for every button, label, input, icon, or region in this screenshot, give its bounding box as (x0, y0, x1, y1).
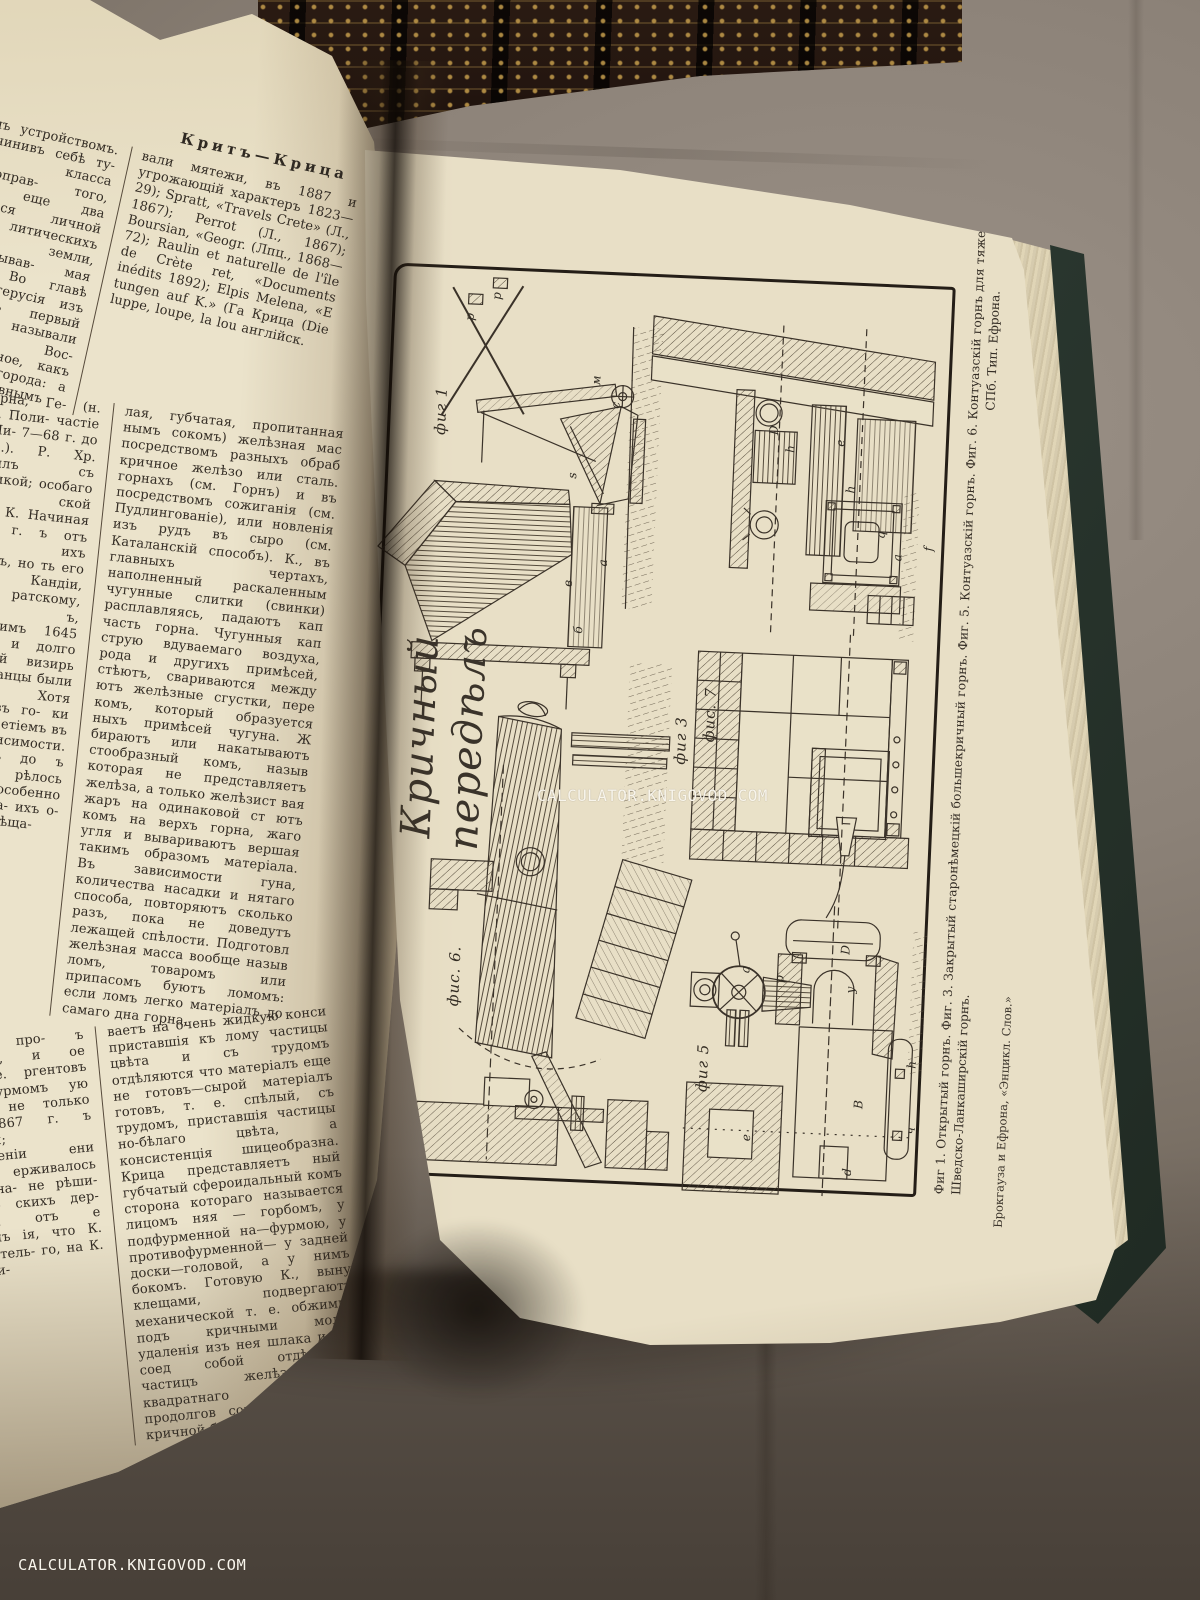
printer-imprint: СПб. Тип. Ефрона. (983, 290, 1002, 411)
figure-7-label: фис. 7 (699, 668, 727, 761)
figure-part-letter: e (739, 1134, 753, 1142)
figure-part-letter: D (838, 945, 852, 955)
figure-5-label: фиг 5 (692, 1026, 720, 1109)
watermark-bottom-left: CALCULATOR.KNIGOVOD.COM (18, 1556, 246, 1574)
figure-part-letter: б (571, 626, 585, 634)
figure-part-letter: y (843, 986, 857, 993)
figure-part-letter: p (463, 313, 477, 321)
figure-part-letter: ч (903, 1127, 917, 1135)
figure-part-letter: a (890, 554, 904, 562)
plate: Кричный передѣлъ фиг 1 фис. 7 фиг 3 фис.… (340, 246, 1092, 1261)
figure-part-letter: с (608, 402, 622, 409)
figure-part-letter: B (851, 1100, 865, 1109)
figure-part-letter: s (565, 472, 579, 479)
figure-part-letter: h (783, 445, 797, 453)
figure-part-letter: a (738, 966, 752, 974)
text-column-2: лая, губчатая, пропитанная нымъ сокомъ) … (49, 403, 344, 1040)
figure-part-letter: f (921, 547, 935, 552)
figure-part-letter: в (561, 580, 575, 588)
figure-part-letter: h (844, 485, 858, 493)
figure-part-letter: м (589, 375, 603, 386)
watermark-center: CALCULATOR.KNIGOVOD.COM (537, 786, 768, 805)
figure-part-letter: p (490, 292, 504, 300)
figure-7-drawing (641, 316, 937, 642)
figure-part-letter: a (596, 559, 610, 567)
fabric-crease (1128, 0, 1144, 540)
figure-part-letter: d (840, 1168, 854, 1176)
figure-3-label: фиг 3 (670, 699, 696, 782)
figure-part-letter: h (904, 1061, 918, 1069)
figure-part-letter: p (772, 975, 786, 983)
figure-part-letter: q (874, 531, 888, 539)
book-gutter-shadow (360, 1200, 620, 1400)
figure-part-letter: e (833, 439, 847, 447)
figure-part-letter: D (767, 425, 781, 435)
figure-6-label: фис. 6. (443, 929, 471, 1022)
